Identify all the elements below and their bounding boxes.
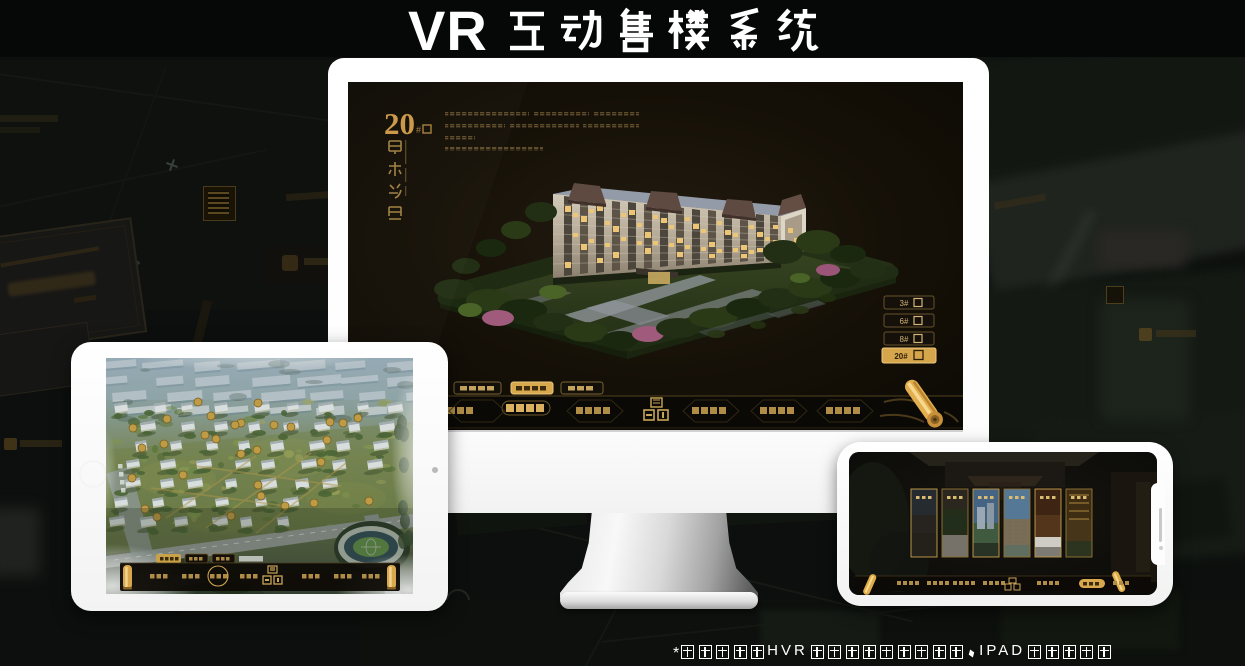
svg-text:8#: 8#	[900, 335, 909, 344]
svg-text:20#: 20#	[894, 352, 908, 361]
svg-text:6#: 6#	[900, 317, 909, 326]
svg-text:3#: 3#	[900, 299, 909, 308]
